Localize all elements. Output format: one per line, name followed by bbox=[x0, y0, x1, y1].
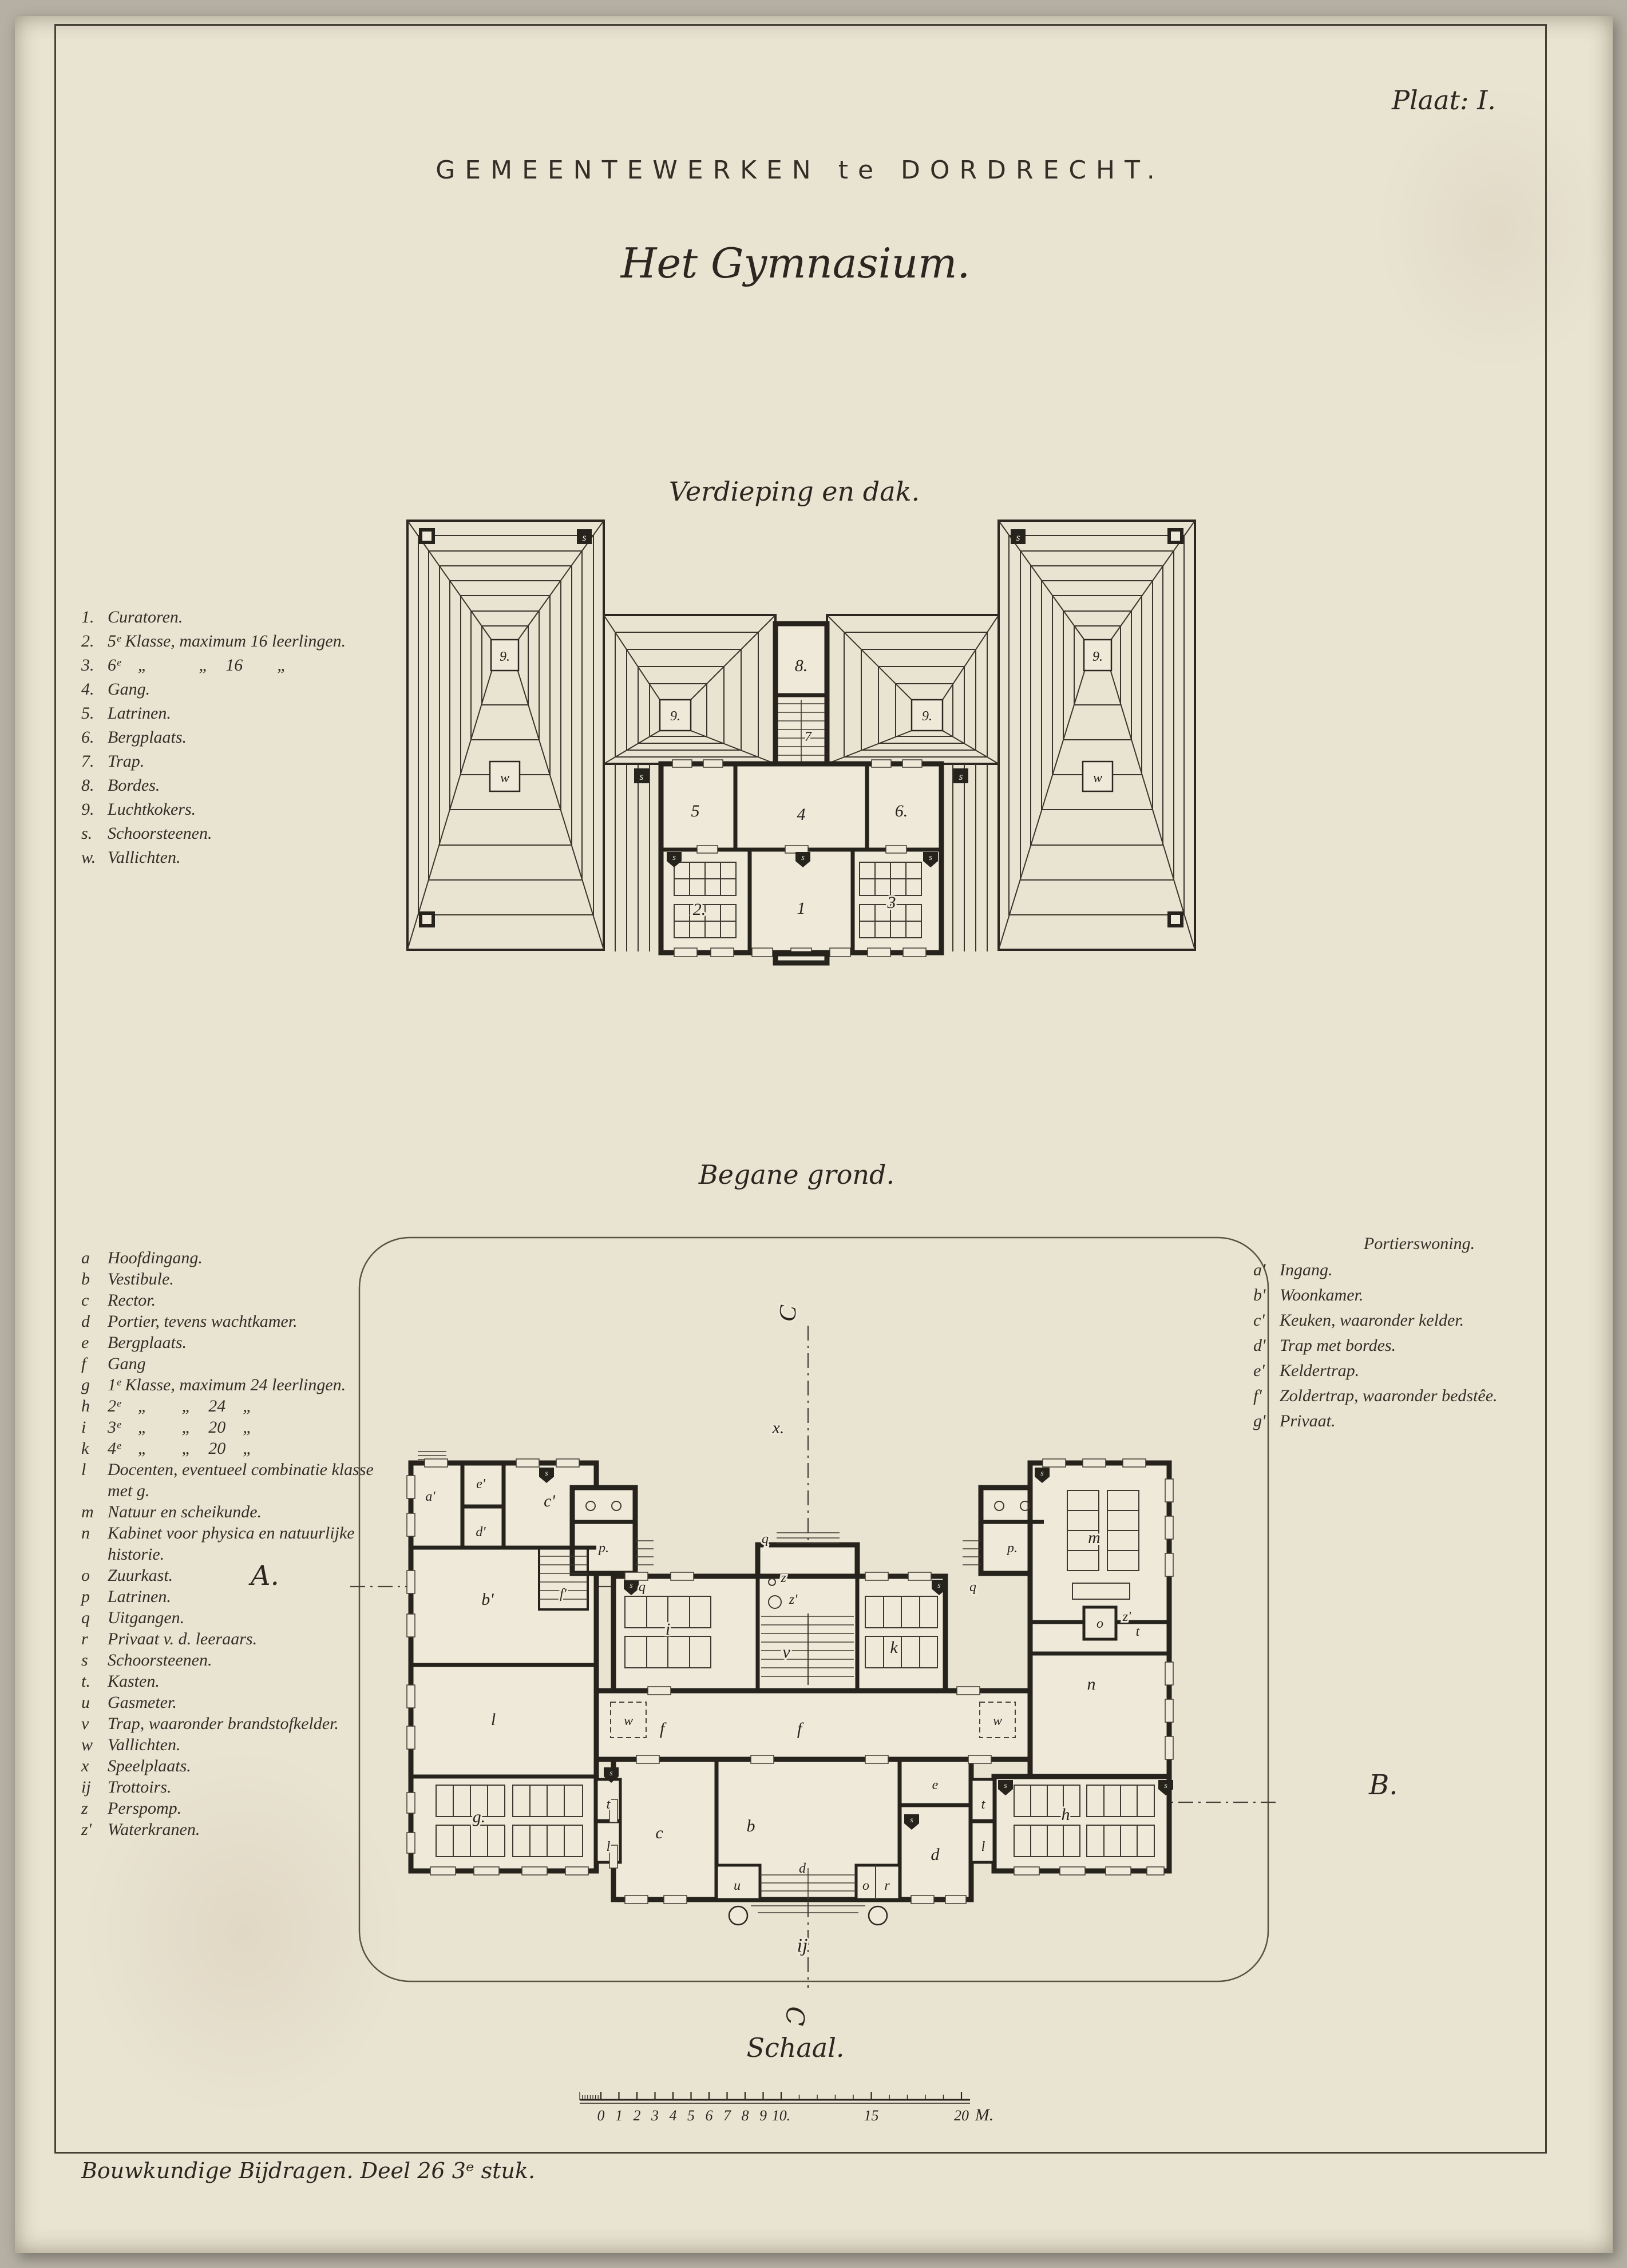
legend-item: 7.Trap. bbox=[81, 750, 346, 774]
fixture-label: d bbox=[799, 1861, 806, 1876]
room-label: l bbox=[491, 1710, 496, 1729]
left-wing-roof bbox=[407, 521, 604, 950]
scale-tick-label: 6 bbox=[706, 2107, 713, 2124]
legend-item: 5.Latrinen. bbox=[81, 701, 346, 725]
lower-plan-legend: aHoofdingang. bVestibule. cRector. dPort… bbox=[81, 1247, 379, 1840]
vent-label: 9. bbox=[1092, 649, 1103, 664]
lower-plan-drawing: a' e' d' c' b' f' l g. p. q p. q i v q z… bbox=[350, 1227, 1277, 1994]
scale-tick-label: 15 bbox=[864, 2107, 879, 2124]
room-label: e bbox=[932, 1778, 939, 1793]
legend-item: 6.Bergplaats. bbox=[81, 725, 346, 750]
imprint: Bouwkundige Bijdragen. Deel 26 3ᵉ stuk. bbox=[81, 2158, 535, 2183]
legend-item: dPortier, tevens wachtkamer. bbox=[81, 1311, 379, 1332]
scale-tick-label: 3 bbox=[651, 2107, 659, 2124]
lower-plan-title: Begane grond. bbox=[699, 1159, 894, 1190]
scale-tick-label: 20 bbox=[954, 2107, 969, 2124]
legend-item: nKabinet voor physica en natuurlijke his… bbox=[81, 1522, 379, 1565]
scale-micro-ticks bbox=[580, 2092, 598, 2100]
legend-item: g1ᵉ Klasse, maximum 24 leerlingen. bbox=[81, 1374, 379, 1395]
room-label: e' bbox=[476, 1477, 486, 1492]
legend-item: oZuurkast. bbox=[81, 1565, 379, 1586]
room-label: d bbox=[931, 1845, 940, 1864]
department-title: GEMEENTEWERKEN te DORDRECHT. bbox=[436, 156, 1165, 185]
legend-item: 3.6ᵉ „ „ 16 „ bbox=[81, 653, 346, 677]
legend-item: ijTrottoirs. bbox=[81, 1777, 379, 1798]
trottoir-label: ij bbox=[797, 1935, 808, 1956]
upper-plan-drawing: 8. 7 5 4 6. 2. 1 3 9. 9. 9. 9. w w s s s… bbox=[406, 506, 1196, 993]
upper-plan-legend: 1.Curatoren. 2.5ᵉ Klasse, maximum 16 lee… bbox=[81, 605, 346, 870]
room-label: b bbox=[747, 1817, 755, 1835]
room-label: v bbox=[782, 1643, 790, 1662]
legend-item: 4.Gang. bbox=[81, 677, 346, 701]
room-label: p. bbox=[1006, 1541, 1018, 1556]
legend-item: sSchoorsteenen. bbox=[81, 1650, 379, 1671]
scale-tick-label: 10. bbox=[772, 2107, 791, 2124]
legend-item: f'Zoldertrap, waaronder bedstêe. bbox=[1253, 1383, 1585, 1409]
chimney-label: s bbox=[1040, 1469, 1044, 1478]
section-marker-c-bottom: C bbox=[779, 2005, 810, 2027]
legend-item: w.Vallichten. bbox=[81, 846, 346, 870]
legend-item: t.Kasten. bbox=[81, 1671, 379, 1692]
room-label: q bbox=[969, 1580, 976, 1595]
room-label: q bbox=[639, 1580, 646, 1595]
legend-item: s.Schoorsteenen. bbox=[81, 822, 346, 846]
legend-item: fGang bbox=[81, 1353, 379, 1374]
chimney-label: s bbox=[545, 1469, 548, 1478]
legend-item: i3ᵉ „ „ 20 „ bbox=[81, 1417, 379, 1438]
legend-item: c'Keuken, waaronder kelder. bbox=[1253, 1308, 1585, 1333]
scale-tick-label: 2 bbox=[634, 2107, 641, 2124]
room-label-6e-klasse: 3 bbox=[887, 893, 896, 912]
room-label: c bbox=[655, 1823, 663, 1842]
scale-unit-label: M. bbox=[975, 2106, 994, 2124]
legend-item: 8.Bordes. bbox=[81, 774, 346, 798]
section-marker-c-top: C bbox=[774, 1304, 802, 1323]
room-label: a' bbox=[425, 1489, 436, 1504]
right-wing-roof bbox=[999, 521, 1195, 950]
legend-item: cRector. bbox=[81, 1290, 379, 1311]
chimney-label: s bbox=[609, 1769, 613, 1778]
legend-item: wVallichten. bbox=[81, 1734, 379, 1755]
room-label: h bbox=[1062, 1805, 1070, 1824]
room-label: c' bbox=[544, 1492, 555, 1510]
fixture-label: z' bbox=[1122, 1609, 1131, 1624]
chimney-label: s bbox=[959, 771, 963, 782]
chimney-label: s bbox=[639, 771, 643, 782]
room-label-bordes: 8. bbox=[795, 656, 808, 675]
skylight-label: w bbox=[993, 1714, 1002, 1728]
legend-item: d'Trap met bordes. bbox=[1253, 1333, 1585, 1358]
fixture-label: z' bbox=[789, 1592, 798, 1607]
legend-item: aHoofdingang. bbox=[81, 1247, 379, 1268]
room-label: q bbox=[762, 1532, 769, 1547]
portierswoning-legend: Portierswoning. a'Ingang. b'Woonkamer. c… bbox=[1253, 1230, 1585, 1434]
fixture-label: o bbox=[1096, 1616, 1103, 1631]
legend-item: qUitgangen. bbox=[81, 1607, 379, 1628]
room-label: p. bbox=[597, 1541, 609, 1556]
chimney-label: s bbox=[937, 1581, 941, 1590]
vent-label: 9. bbox=[922, 709, 932, 724]
room-label-gang: 4 bbox=[797, 805, 806, 824]
skylight-label: w bbox=[1093, 771, 1102, 786]
scale-tick-label: 1 bbox=[615, 2107, 623, 2124]
vent-label: 9. bbox=[670, 709, 680, 724]
legend-item: eBergplaats. bbox=[81, 1332, 379, 1353]
fixture-label: o bbox=[862, 1878, 869, 1893]
chimney-label: s bbox=[630, 1581, 633, 1590]
scale-tick-label: 7 bbox=[723, 2107, 731, 2124]
room-label: i bbox=[666, 1620, 670, 1639]
chimney-label: s bbox=[1164, 1782, 1167, 1790]
legend-item: vTrap, waaronder brandstofkelder. bbox=[81, 1713, 379, 1734]
fixture-label: u bbox=[734, 1878, 741, 1893]
room-label: m bbox=[1088, 1528, 1100, 1547]
scale-tick-label: 0 bbox=[597, 2107, 605, 2124]
legend-item: 9.Luchtkokers. bbox=[81, 798, 346, 822]
scale-tick-label: 5 bbox=[687, 2107, 695, 2124]
legend-item: g'Privaat. bbox=[1253, 1409, 1585, 1434]
scale-tick-label: 8 bbox=[742, 2107, 749, 2124]
room-label: g. bbox=[473, 1807, 486, 1826]
drawing-title: Het Gymnasium. bbox=[621, 239, 971, 287]
legend-item: b'Woonkamer. bbox=[1253, 1283, 1585, 1308]
scale-tick-label: 4 bbox=[670, 2107, 677, 2124]
closet-label: l bbox=[607, 1839, 611, 1854]
building-walls bbox=[411, 1463, 1169, 1900]
legend-item: a'Ingang. bbox=[1253, 1258, 1585, 1283]
scale-tick-label: 9 bbox=[759, 2107, 767, 2124]
legend-item: k4ᵉ „ „ 20 „ bbox=[81, 1438, 379, 1459]
plate-number: Plaat: I. bbox=[1392, 85, 1496, 116]
legend-item: pLatrinen. bbox=[81, 1586, 379, 1607]
room-label-5e-klasse: 2. bbox=[693, 900, 706, 919]
legend-item: z'Waterkranen. bbox=[81, 1819, 379, 1840]
fixture-label: r bbox=[884, 1878, 890, 1893]
upper-plan-title: Verdieping en dak. bbox=[669, 476, 920, 507]
legend-item: xSpeelplaats. bbox=[81, 1755, 379, 1777]
section-marker-a: A. bbox=[251, 1560, 279, 1592]
room-label-curatoren: 1 bbox=[797, 899, 806, 918]
legend-item: zPerspomp. bbox=[81, 1798, 379, 1819]
room-label: n bbox=[1087, 1675, 1096, 1694]
room-label: f' bbox=[560, 1587, 567, 1601]
room-label-trap: 7 bbox=[805, 729, 812, 744]
chimney-label: s bbox=[910, 1816, 913, 1825]
scale-title: Schaal. bbox=[746, 2032, 844, 2063]
legend-item: 1.Curatoren. bbox=[81, 605, 346, 629]
legend-item: lDocenten, eventueel combinatie klasse m… bbox=[81, 1459, 379, 1501]
chimney-label: s bbox=[929, 853, 932, 862]
chimney-label: s bbox=[801, 853, 805, 862]
skylight-label: w bbox=[500, 771, 509, 786]
legend-item: bVestibule. bbox=[81, 1268, 379, 1290]
skylight-label: w bbox=[624, 1714, 633, 1728]
room-label: b' bbox=[481, 1590, 494, 1609]
legend-item: e'Keldertrap. bbox=[1253, 1358, 1585, 1383]
room-label: d' bbox=[476, 1525, 486, 1540]
room-label: k bbox=[890, 1638, 898, 1657]
bordes-tower bbox=[775, 624, 827, 764]
vent-label: 9. bbox=[500, 649, 510, 664]
legend-item: uGasmeter. bbox=[81, 1692, 379, 1713]
legend-item: 2.5ᵉ Klasse, maximum 16 leerlingen. bbox=[81, 629, 346, 653]
speelplaats-label: x. bbox=[772, 1418, 785, 1437]
chimney-label: s bbox=[1016, 532, 1020, 543]
scale-bar: 0 1 2 3 4 5 6 7 8 9 10. 15 20 M. bbox=[575, 2080, 1033, 2132]
chimney-label: s bbox=[672, 853, 676, 862]
room-label-bergplaats: 6. bbox=[895, 802, 908, 820]
legend-item: mNatuur en scheikunde. bbox=[81, 1501, 379, 1522]
chimney-label: s bbox=[582, 532, 586, 543]
plate-page: Plaat: I. GEMEENTEWERKEN te DORDRECHT. H… bbox=[0, 0, 1627, 2268]
section-marker-b: B. bbox=[1369, 1769, 1398, 1801]
fixture-label: z bbox=[780, 1571, 786, 1585]
chimney-label: s bbox=[1004, 1782, 1007, 1790]
portierswoning-title: Portierswoning. bbox=[1253, 1230, 1585, 1258]
closet-label: l bbox=[981, 1839, 985, 1854]
legend-item: rPrivaat v. d. leeraars. bbox=[81, 1628, 379, 1650]
room-label-latrinen: 5 bbox=[691, 802, 700, 820]
legend-item: h2ᵉ „ „ 24 „ bbox=[81, 1395, 379, 1417]
